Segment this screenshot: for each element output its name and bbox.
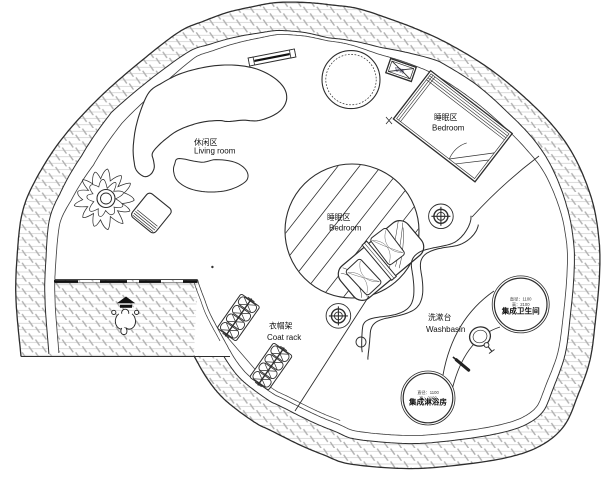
svg-text:Living room: Living room bbox=[194, 147, 236, 156]
svg-text:直径：1100: 直径：1100 bbox=[510, 295, 532, 301]
svg-text:直径：1100: 直径：1100 bbox=[417, 389, 439, 395]
svg-text:洗漱台: 洗漱台 bbox=[428, 312, 452, 322]
svg-text:休闲区: 休闲区 bbox=[194, 137, 218, 147]
svg-text:睡眠区: 睡眠区 bbox=[434, 113, 458, 122]
svg-text:Bedroom: Bedroom bbox=[329, 224, 362, 233]
svg-text:衣帽架: 衣帽架 bbox=[269, 321, 293, 331]
svg-text:Washbasin: Washbasin bbox=[426, 325, 465, 334]
svg-text:Coat rack: Coat rack bbox=[267, 333, 302, 342]
svg-text:Bedroom: Bedroom bbox=[432, 124, 465, 133]
svg-text:集成淋浴房: 集成淋浴房 bbox=[408, 397, 447, 407]
svg-text:睡眠区: 睡眠区 bbox=[327, 213, 351, 222]
svg-text:集成卫生间: 集成卫生间 bbox=[501, 306, 540, 316]
